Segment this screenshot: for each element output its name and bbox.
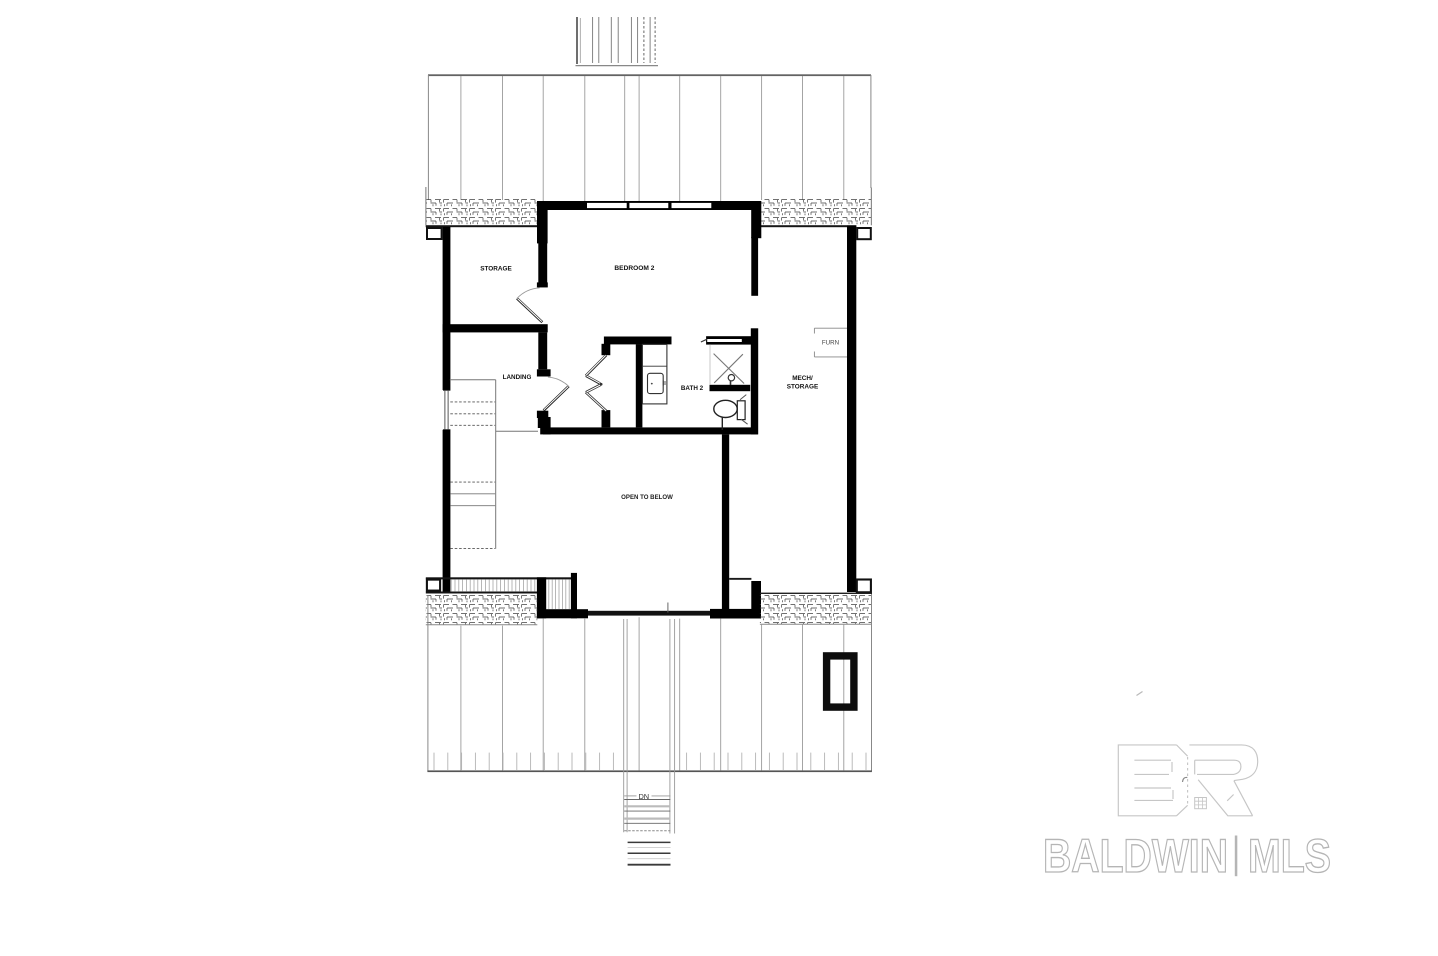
svg-text:STORAGE: STORAGE <box>787 384 819 391</box>
svg-text:STORAGE: STORAGE <box>480 265 512 272</box>
svg-text:BEDROOM 2: BEDROOM 2 <box>614 265 654 272</box>
svg-text:MECH/: MECH/ <box>792 375 813 382</box>
svg-text:BATH 2: BATH 2 <box>681 385 704 392</box>
svg-text:FURN: FURN <box>822 339 839 346</box>
svg-text:LANDING: LANDING <box>503 374 532 381</box>
svg-text:OPEN TO BELOW: OPEN TO BELOW <box>621 494 673 501</box>
svg-text:MLS: MLS <box>1248 830 1331 883</box>
svg-text:BALDWIN: BALDWIN <box>1043 830 1228 883</box>
